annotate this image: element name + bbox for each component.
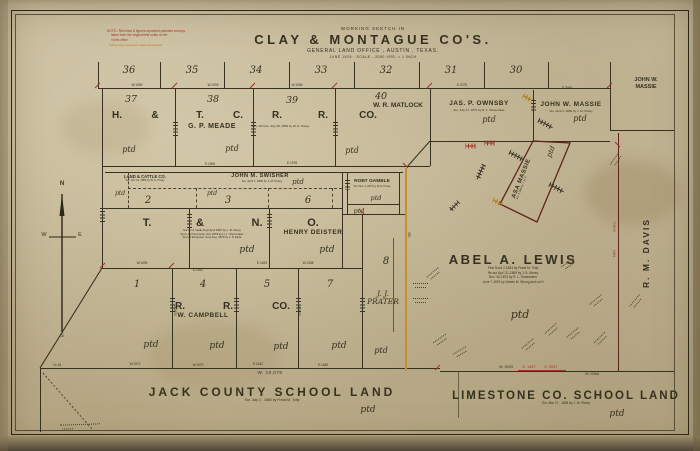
distance-label-red: 5.5540 — [612, 222, 615, 232]
section-number: 4 — [200, 280, 206, 290]
patented-label: ptd — [609, 410, 624, 419]
distance-label: W.1493 — [137, 262, 148, 265]
survey-note: Sur. Mar 27 - 1854 by J. M. Peavy — [542, 402, 590, 405]
survey-note: Sur. July 27, 1873 by R. L. Shoemaker — [453, 109, 504, 112]
distance-label: E.3000 — [562, 87, 572, 90]
patented-label: ptd — [511, 309, 530, 320]
section-number: 3 — [225, 196, 231, 206]
compass-e-label: E — [78, 233, 82, 239]
compass-s-label: S — [60, 334, 64, 340]
company-letter: C. — [233, 111, 243, 121]
survey-hatch-mark — [100, 208, 105, 224]
distance-label: 350 — [407, 232, 410, 237]
distance-label: E.1493 — [257, 262, 267, 265]
survey-hatch-mark — [234, 298, 239, 314]
distance-label: E.2075 — [457, 84, 467, 87]
patented-label: ptd — [273, 343, 288, 352]
compass-w-label: W — [41, 233, 46, 239]
distance-label: E.1492 — [193, 269, 203, 272]
company-letter: T. — [143, 218, 152, 229]
survey-hatch-mark — [296, 298, 301, 314]
owner-name: W. R. MATLOCK — [373, 103, 423, 110]
company-letter: R. — [272, 111, 282, 121]
survey-hatch-mark — [187, 214, 192, 230]
survey-note: June 7-1876 by James M. Strong and cor'd — [483, 281, 544, 284]
owner-name: PRATER — [367, 298, 399, 306]
survey-hatch-mark-red — [485, 141, 495, 146]
distance-label: W. 10,078 — [258, 371, 283, 376]
survey-note: Sur. April 4, 1860 by J. M. Peavy — [549, 110, 592, 113]
section-number: 2 — [145, 196, 151, 206]
distance-label: W.1903 — [208, 84, 219, 87]
distance-label-red: E. 3547 — [544, 366, 557, 370]
distance-label: W.1972 — [130, 363, 141, 366]
patented-label: ptd — [122, 146, 135, 154]
patented-label: ptd — [292, 179, 304, 186]
patented-label: ptd — [207, 191, 217, 197]
distance-label: 14.15 — [53, 364, 61, 367]
section-number: 6 — [305, 196, 311, 206]
owner-name: G. P. MEADE — [188, 123, 236, 130]
patented-label: ptd — [115, 191, 125, 197]
company-letter: H. — [112, 111, 122, 121]
survey-hatch-mark — [360, 298, 365, 314]
section-number: 39 — [286, 96, 298, 106]
survey-note: Sur. Dec. 2, 1873 by W. E. Posey — [354, 186, 391, 189]
owner-name: MASSIE — [635, 85, 656, 91]
compass-north-arrow — [60, 194, 65, 216]
company-letter: & — [151, 111, 158, 121]
patented-label: ptd — [371, 195, 382, 202]
survey-note: Sur's 5 Extension June Aug. 1879 by J. P… — [183, 236, 242, 239]
survey-hatch-mark — [251, 122, 256, 138]
survey-map-sheet: NOTE:- Red lines & figures represent pat… — [0, 0, 700, 451]
company-letter: R. — [223, 302, 233, 312]
distance-label-red: 1694 — [612, 250, 615, 257]
owner-name-vertical: R. M. DAVIS — [642, 218, 651, 288]
distance-label-red: E. 1457 — [522, 366, 535, 370]
section-number: 37 — [125, 95, 137, 105]
patented-label: ptd — [239, 246, 254, 255]
patented-label: ptd — [225, 145, 238, 153]
section-number: 7 — [327, 280, 333, 290]
patented-label: ptd — [331, 342, 346, 351]
illegible-annotation — [413, 283, 428, 284]
section-number: 1 — [134, 280, 140, 290]
section-number: 5 — [264, 280, 270, 290]
distance-label: E.1978 — [287, 162, 297, 165]
company-letter: R. — [318, 111, 328, 121]
illegible-annotation — [413, 298, 428, 299]
survey-note: Surv. 4th Nov. July 28, 1883 by W. E. Po… — [251, 125, 309, 128]
company-letter: O. — [307, 218, 319, 229]
survey-hatch-mark — [345, 180, 350, 190]
survey-hatch-mark — [531, 100, 536, 111]
company-letter: CO. — [359, 111, 377, 121]
distance-label: W.1970 — [193, 364, 204, 367]
patented-label: ptd — [319, 246, 334, 255]
distance-label: E.1432 — [253, 363, 263, 366]
distance-label: W.1906 — [292, 84, 303, 87]
survey-note: Sur. April 7, 1860 by J. M. Peavy — [242, 180, 282, 183]
distance-label: W. 5003 — [499, 366, 513, 370]
owner-name: ABEL A. LEWIS — [449, 253, 578, 266]
patented-label: ptd — [209, 342, 224, 351]
section-number: 8 — [383, 257, 389, 267]
distance-label: W.1308 — [303, 262, 314, 265]
survey-note: Sur. Oct. 21, 1883 by W. E. Posey — [125, 180, 164, 183]
company-letter: T. — [196, 111, 204, 121]
survey-hatch-mark — [333, 122, 338, 138]
survey-note: Sur. July 2 - 1860 by Frank M. Totty — [245, 399, 300, 403]
linework-overlay — [0, 0, 700, 451]
patented-label: ptd — [374, 347, 387, 355]
section-number: 40 — [375, 92, 387, 102]
school-land-label: JACK COUNTY SCHOOL LAND — [149, 386, 396, 398]
distance-label: E.1455 — [318, 364, 328, 367]
owner-name: W. CAMPBELL — [178, 313, 229, 320]
survey-hatch-mark-red — [466, 144, 476, 149]
patented-label: ptd — [345, 147, 358, 155]
owner-name: JOHN W. MASSIE — [540, 102, 601, 109]
patented-label: ptd — [482, 116, 495, 124]
distance-label: W. 9364 — [585, 373, 599, 377]
survey-hatch-mark — [267, 214, 272, 230]
company-letter: CO. — [272, 302, 290, 312]
patented-label: ptd — [573, 115, 586, 123]
distance-label: W.1900 — [132, 84, 143, 87]
company-letter: N. — [252, 218, 263, 229]
section-number: 38 — [207, 95, 219, 105]
distance-label: E.1905 — [205, 163, 215, 166]
owner-name: HENRY DEISTER — [284, 230, 343, 237]
survey-hatch-mark — [170, 298, 175, 314]
patented-label: ptd — [360, 406, 375, 415]
owner-name: JAS. P. OWNSBY — [449, 101, 509, 108]
patented-label: ptd — [143, 341, 158, 350]
compass-n-label: N — [60, 181, 64, 187]
survey-hatch-mark — [173, 122, 178, 138]
